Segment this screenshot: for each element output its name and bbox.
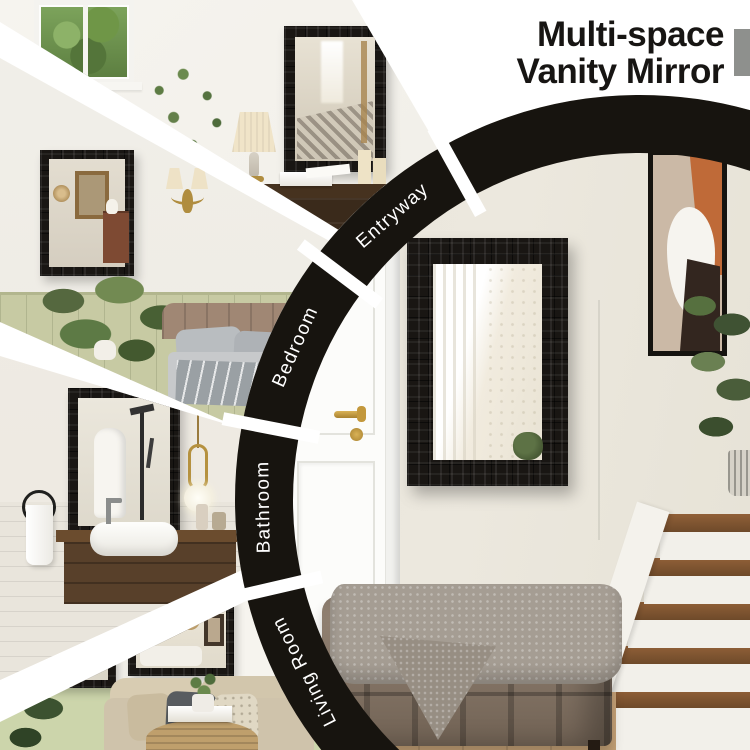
sconce-shade: [191, 168, 208, 189]
bathroom-mirror-glass: [78, 398, 170, 526]
sconce-shade: [166, 168, 183, 189]
stair-riser: [644, 576, 750, 604]
stair-tread: [612, 646, 750, 664]
stair-riser: [628, 620, 750, 648]
sheep-figurine: [94, 340, 116, 360]
bathroom-mirror: [68, 388, 180, 536]
wall-corner: [598, 300, 600, 540]
stair-tread: [596, 690, 750, 708]
reflection-hand-shower: [146, 438, 154, 468]
living-mirror-landscape-glass: [136, 604, 226, 668]
table-plant-pot: [192, 694, 214, 712]
stair-riser: [660, 532, 750, 560]
decor-bottle: [196, 504, 208, 530]
reflection-woven-plate: [180, 610, 200, 630]
ottoman-foot: [588, 740, 600, 750]
reflection-flowers: [156, 634, 170, 648]
reflection-picture: [204, 614, 224, 646]
reflection-bedding: [140, 646, 202, 666]
striped-planter: [728, 450, 750, 496]
hallway-scene: [235, 95, 750, 750]
reflection-plant: [513, 432, 543, 460]
vanity-mirror: [407, 238, 568, 486]
stair-tread: [660, 514, 750, 532]
page-title: Multi-space Vanity Mirror: [517, 16, 724, 91]
stair-tread: [644, 558, 750, 576]
bedroom-mirror-glass: [49, 159, 125, 267]
stair-tread: [628, 602, 750, 620]
reflection-woven-plate: [53, 185, 70, 202]
title-line-2: Vanity Mirror: [517, 53, 724, 90]
reflection-red-shelf: [103, 211, 129, 263]
towel: [26, 505, 53, 565]
ottoman-foot: [336, 740, 348, 750]
stair-riser: [612, 664, 750, 692]
window-muntin: [83, 5, 88, 79]
sconce-arms: [171, 189, 204, 205]
door-lock: [350, 428, 363, 441]
mirror-reflection-corridor: [321, 41, 343, 103]
reflection-cat-figurine: [106, 199, 118, 214]
bedroom-mirror: [40, 150, 134, 276]
door-handle-rosette: [357, 406, 366, 422]
faucet-spout: [106, 498, 122, 503]
vanity-mirror-glass: [433, 264, 542, 460]
bedroom-sconce: [166, 166, 210, 228]
reflection-wallpaper: [485, 264, 542, 460]
title-line-1: Multi-space: [517, 16, 724, 53]
ring-label-bathroom: Bathroom: [252, 460, 276, 553]
reflection-curtain: [433, 264, 477, 460]
title-accent-bar: [734, 29, 750, 76]
decor-jar: [212, 512, 226, 530]
product-collage: Entryway Bedroom Bathroom Living Room Mu…: [0, 0, 750, 750]
main-photo: [235, 95, 750, 750]
stair-riser: [596, 708, 750, 750]
reflection-shower-pole: [140, 408, 144, 520]
window: [34, 0, 134, 84]
vessel-sink: [90, 522, 178, 556]
hallway-plant: [676, 278, 750, 464]
